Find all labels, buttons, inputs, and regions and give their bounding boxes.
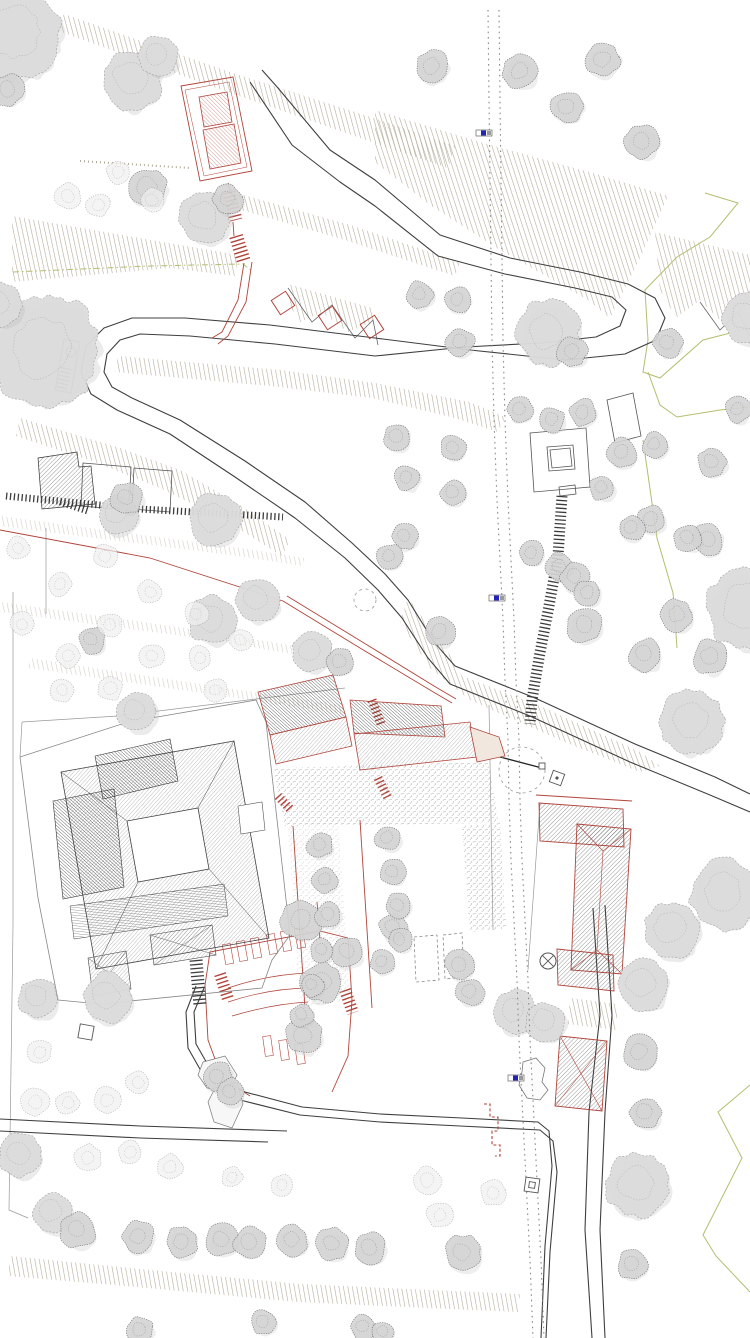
tree <box>0 0 66 84</box>
tree <box>481 1180 506 1205</box>
stairs <box>530 496 562 724</box>
red-hatched-building <box>203 124 241 169</box>
tree <box>370 949 396 976</box>
tree <box>502 54 538 90</box>
tree <box>618 1249 648 1281</box>
main-building-wing <box>53 789 124 899</box>
tree <box>446 1235 483 1274</box>
main-building-entry-jog <box>238 802 265 834</box>
red-hatched-building <box>199 92 232 127</box>
tree <box>569 398 598 429</box>
main-building-courtyard <box>127 808 209 882</box>
parking-arc <box>228 973 310 988</box>
tree <box>18 979 59 1020</box>
tree <box>693 639 727 678</box>
tree <box>374 827 403 853</box>
dashed-gate-swing <box>354 589 376 611</box>
red-line <box>536 795 632 801</box>
parking-bay <box>222 943 233 964</box>
site-plan-canvas <box>0 0 750 1338</box>
tree <box>276 1224 309 1258</box>
tree <box>455 980 485 1008</box>
paved-court <box>462 823 506 932</box>
tree <box>189 645 210 670</box>
tree <box>606 437 637 470</box>
farm-building <box>557 949 614 991</box>
trail-gate-marker <box>508 1075 524 1081</box>
tree <box>271 1174 292 1196</box>
tree <box>54 182 80 209</box>
tree <box>74 1144 101 1171</box>
olive-line <box>703 1085 750 1292</box>
tree <box>315 1227 348 1262</box>
tree <box>252 1310 279 1337</box>
tree <box>394 466 421 493</box>
tree <box>372 1323 395 1338</box>
tree <box>55 1092 80 1114</box>
tree <box>125 1071 148 1094</box>
tree <box>417 50 451 87</box>
tree <box>590 476 617 502</box>
red-line <box>360 820 372 1008</box>
survey-point-marker <box>540 953 556 969</box>
tree <box>98 676 122 700</box>
tree <box>605 1152 672 1221</box>
tree <box>0 1133 43 1181</box>
tree <box>629 1099 662 1131</box>
tree <box>567 609 603 646</box>
tree <box>222 1166 243 1186</box>
tree <box>138 579 162 602</box>
tree <box>540 408 567 435</box>
trail-gate-marker <box>476 130 492 136</box>
tree <box>441 435 467 462</box>
tree <box>7 536 30 559</box>
olive-line <box>80 161 190 168</box>
red-section-zigzag <box>484 1104 500 1156</box>
tree <box>660 599 694 634</box>
dashed-plot <box>414 935 439 982</box>
boundary-line <box>9 592 28 1218</box>
red-stairs <box>220 974 228 999</box>
tree <box>355 1232 387 1266</box>
dashed-gate-swing <box>499 747 545 793</box>
tree <box>628 638 661 674</box>
tree <box>659 689 726 759</box>
tree <box>204 679 227 702</box>
paved-court <box>273 762 499 826</box>
parking-bay <box>263 1036 274 1057</box>
tree <box>380 859 406 886</box>
hatch-band <box>8 1256 520 1312</box>
tree <box>507 397 534 424</box>
red-line <box>233 222 234 236</box>
hatch-band <box>288 284 378 332</box>
tree <box>290 1004 315 1029</box>
site-plan <box>0 0 750 1338</box>
boundary-line <box>500 757 542 768</box>
boundary-line <box>528 803 540 970</box>
tree <box>384 425 411 453</box>
tree <box>698 448 729 478</box>
tree <box>27 1041 51 1063</box>
tree <box>21 1088 50 1116</box>
tree <box>139 645 165 668</box>
tree <box>190 494 243 548</box>
tree <box>106 161 129 184</box>
parking-bay <box>279 1040 290 1061</box>
tree <box>426 1203 453 1227</box>
tree <box>623 125 661 161</box>
hatch-band <box>568 998 618 1030</box>
tree <box>574 581 602 608</box>
tree <box>445 949 476 982</box>
tree <box>550 93 586 125</box>
tree <box>624 1034 658 1072</box>
tree <box>233 1226 266 1260</box>
tree <box>116 692 159 735</box>
tree <box>406 281 436 312</box>
trail-gate-marker <box>489 595 505 601</box>
tree <box>519 540 544 567</box>
west-hatched-building <box>38 452 95 509</box>
tree <box>167 1227 198 1261</box>
tree <box>376 545 404 571</box>
boundary-stone-marker <box>549 770 564 785</box>
tree <box>235 580 281 626</box>
tree <box>445 287 473 315</box>
tree <box>118 1140 140 1163</box>
plot-corner-marker <box>539 763 545 769</box>
hatch-band <box>115 356 505 432</box>
road-edge <box>0 1119 287 1131</box>
tree <box>618 958 670 1012</box>
tree <box>292 631 332 675</box>
tree <box>93 544 117 567</box>
tree <box>642 431 670 459</box>
tree <box>158 1153 184 1179</box>
tree <box>652 328 684 359</box>
tree <box>725 396 750 426</box>
small-structure-rot_rect <box>607 393 641 443</box>
tree <box>413 1166 442 1195</box>
hatch-band <box>228 192 460 276</box>
boundary-line <box>20 722 22 757</box>
utility-marker <box>524 1177 540 1193</box>
tree <box>49 572 72 597</box>
plot-corner-marker <box>78 1024 94 1040</box>
tree <box>126 1317 156 1338</box>
small-structure-square_outer <box>530 428 590 492</box>
tree <box>122 1220 156 1256</box>
tree <box>50 679 74 702</box>
tree <box>95 1086 122 1113</box>
tree <box>645 903 703 962</box>
tree <box>445 329 475 359</box>
tree <box>585 43 623 80</box>
tree <box>440 480 468 508</box>
tree <box>85 194 110 216</box>
tree <box>389 928 413 954</box>
